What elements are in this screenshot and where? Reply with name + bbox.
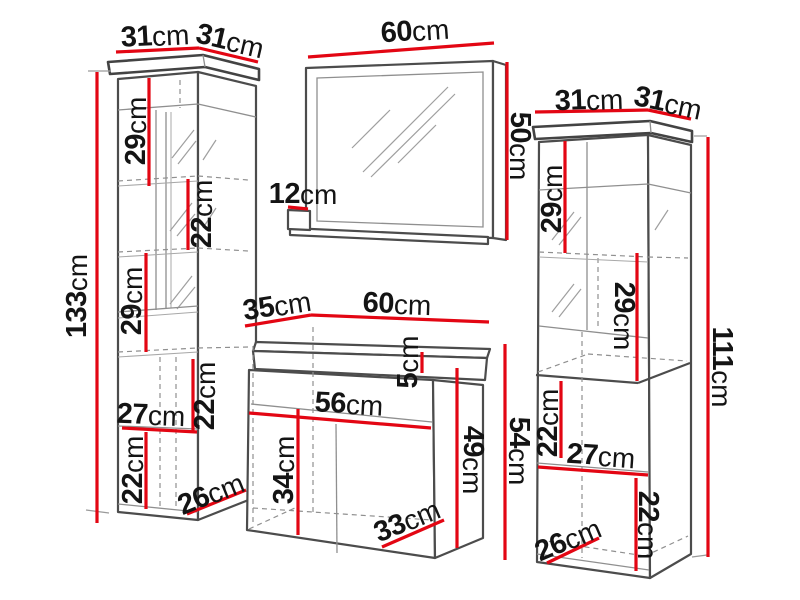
dim-left-cabinet-height: 133cm <box>61 71 111 523</box>
dim-label-vanity-inner-height: 49cm <box>457 426 489 495</box>
dim-vanity-width: 60cm <box>311 287 489 322</box>
dim-mirror-shelf-depth: 12cm <box>269 178 338 210</box>
dim-label-right-cabinet-section-lower: 22cm <box>532 389 564 458</box>
vanity-cabinet: 35cm 60cm 5cm 56cm 34cm 49cm 54cm 33cm <box>241 285 535 560</box>
dim-label-mirror-height: 50cm <box>504 112 536 181</box>
dim-vanity-height: 54cm <box>503 344 535 560</box>
dim-vanity-top-height: 5cm <box>392 336 424 389</box>
furniture-dimensions-diagram: 31cm 31cm 133cm 29cm 22cm 29cm 22cm <box>0 0 800 600</box>
dim-label-left-cabinet-section-middle: 29cm <box>116 267 148 336</box>
dim-label-mirror-shelf-depth: 12cm <box>269 178 338 210</box>
dim-label-right-cabinet-inner-width: 27cm <box>566 438 637 475</box>
dim-label-left-cabinet-section-top: 29cm <box>120 97 152 166</box>
mirror-shelf-ledge <box>288 210 310 230</box>
dim-label-right-cabinet-section-upper: 29cm <box>608 282 640 351</box>
dim-label-left-cabinet-section-bottom: 22cm <box>117 436 149 505</box>
dim-label-vanity-door-height: 34cm <box>268 436 300 505</box>
dim-label-right-cabinet-width: 31cm <box>554 83 624 117</box>
dim-right-cabinet-section-bottom: 22cm <box>632 478 664 571</box>
dim-mirror-width: 60cm <box>308 13 494 57</box>
dim-label-left-cabinet-width: 31cm <box>120 18 190 54</box>
dim-label-left-cabinet-height: 133cm <box>61 254 93 338</box>
dim-mirror-height: 50cm <box>504 62 536 240</box>
dim-right-cabinet-depth: 31cm <box>631 80 705 126</box>
dim-right-cabinet-section-lower: 22cm <box>532 381 564 458</box>
left-cabinet: 31cm 31cm 133cm 29cm 22cm 29cm 22cm <box>61 18 267 523</box>
dim-label-left-cabinet-inner-width: 27cm <box>116 398 186 432</box>
dim-right-cabinet-height: 111cm <box>692 136 738 557</box>
right-cabinet: 31cm 31cm 111cm 29cm 29cm 22cm 27cm <box>530 80 738 578</box>
dim-label-left-cabinet-section-upper: 22cm <box>186 180 218 249</box>
dim-label-left-cabinet-section-lower: 22cm <box>189 362 221 431</box>
dim-left-cabinet-section-upper: 22cm <box>186 179 218 250</box>
dim-right-cabinet-width: 31cm <box>535 83 648 117</box>
dim-label-mirror-width: 60cm <box>380 13 451 50</box>
dim-label-right-cabinet-section-top: 29cm <box>536 165 568 234</box>
dim-left-cabinet-section-bottom: 22cm <box>117 432 149 509</box>
dim-label-right-cabinet-depth: 31cm <box>631 80 705 126</box>
dim-label-right-cabinet-section-bottom: 22cm <box>632 491 664 560</box>
dim-label-right-cabinet-height: 111cm <box>706 326 738 407</box>
dim-left-cabinet-section-lower: 22cm <box>189 359 221 431</box>
mirror: 60cm 50cm 12cm <box>269 13 536 244</box>
dim-label-vanity-height: 54cm <box>503 417 535 486</box>
dim-left-cabinet-inner-width: 27cm <box>116 398 197 432</box>
dim-label-vanity-width: 60cm <box>362 287 432 321</box>
dim-label-vanity-top-height: 5cm <box>392 336 424 389</box>
mirror-side-panel <box>493 61 506 240</box>
dim-left-cabinet-width: 31cm <box>116 18 199 54</box>
dim-label-vanity-inner-width: 56cm <box>314 386 384 422</box>
